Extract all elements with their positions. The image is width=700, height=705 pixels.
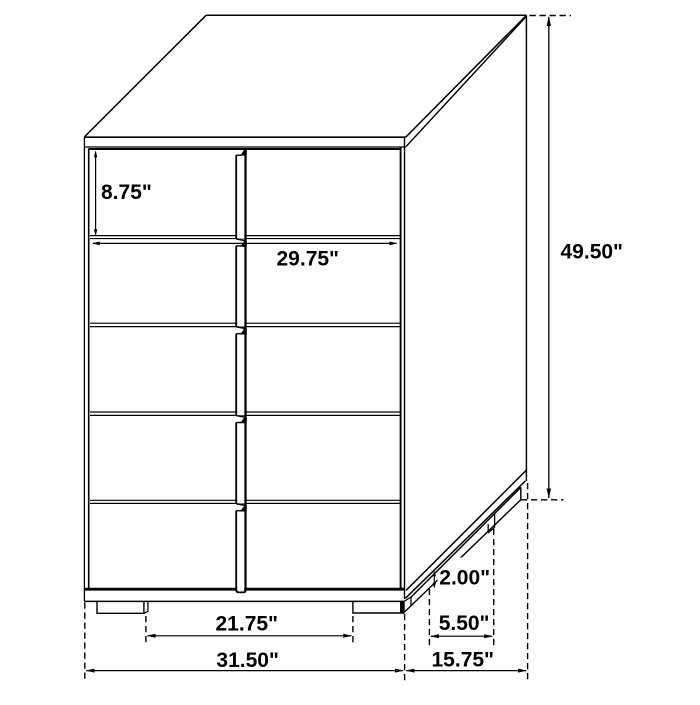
svg-text:2.00": 2.00" bbox=[439, 566, 490, 589]
svg-text:15.75": 15.75" bbox=[432, 649, 495, 672]
svg-text:49.50": 49.50" bbox=[561, 240, 624, 263]
svg-text:8.75": 8.75" bbox=[101, 181, 152, 204]
svg-text:5.50": 5.50" bbox=[439, 612, 490, 635]
svg-text:31.50": 31.50" bbox=[216, 649, 279, 672]
svg-text:29.75": 29.75" bbox=[277, 247, 340, 270]
svg-text:21.75": 21.75" bbox=[216, 613, 279, 636]
